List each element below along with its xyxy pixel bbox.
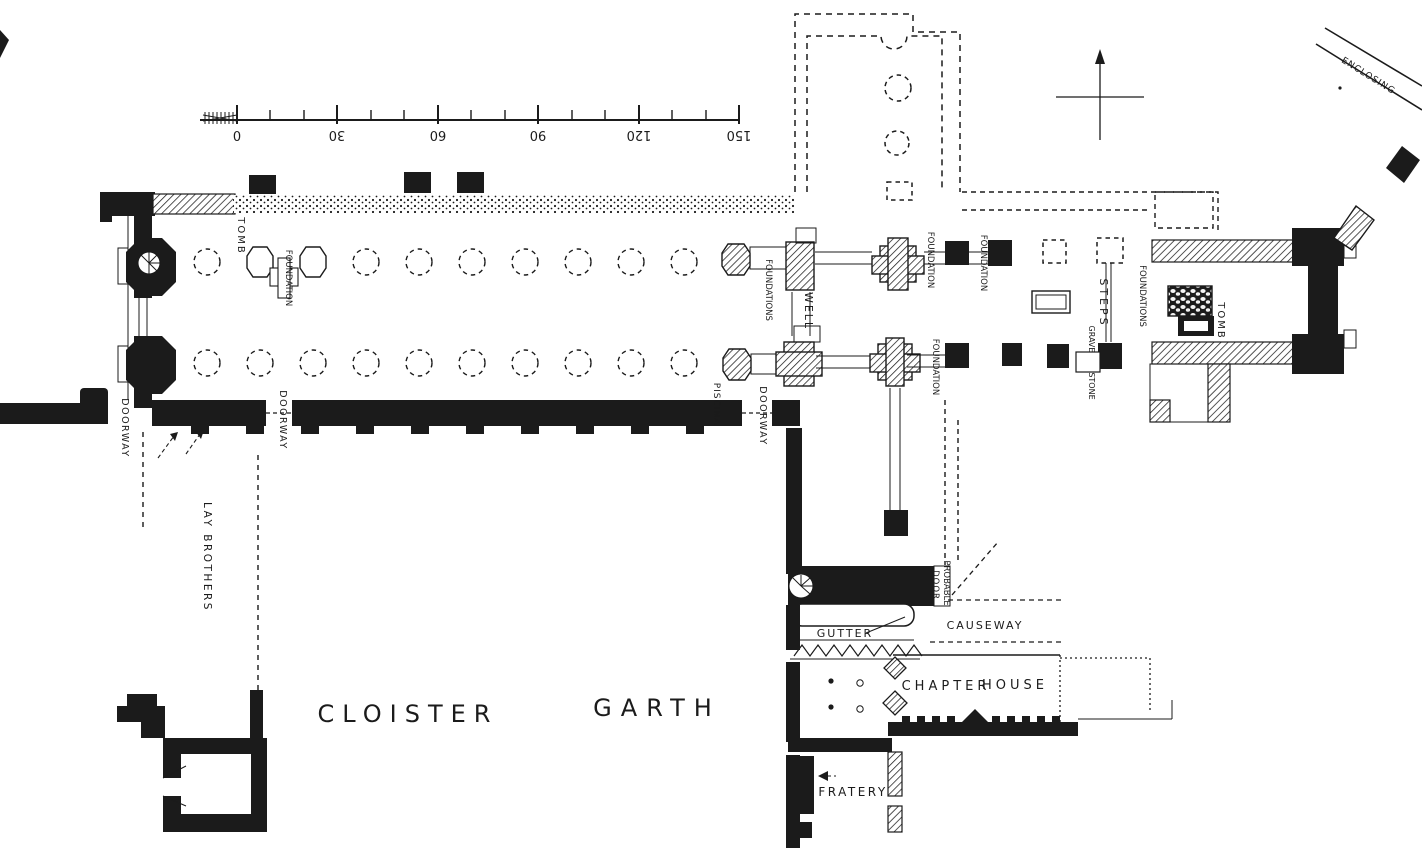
scale-bar-major-ticks xyxy=(237,105,739,124)
arrow-icon xyxy=(818,771,836,781)
doorway-crossing-label: DOORWAY xyxy=(757,386,768,445)
well-label: WELL xyxy=(802,292,815,330)
house-label: HOUSE xyxy=(982,678,1048,693)
foundation-se-label: FOUNDATION xyxy=(930,339,940,395)
choir xyxy=(815,238,1123,386)
tomb-west-label: TOMB xyxy=(235,216,246,254)
east-tomb-cobbles xyxy=(1168,286,1212,316)
foundation-nave-label: FOUNDATION xyxy=(283,250,293,306)
scale-tick-0: 0 xyxy=(233,127,241,142)
south-west-crossing-pier xyxy=(776,342,822,386)
edge-mark xyxy=(0,30,9,58)
probable-label: PROBABLE xyxy=(941,560,951,605)
spiral-stair-icon xyxy=(138,252,160,274)
north-arrow-icon xyxy=(1056,49,1144,140)
north-transept xyxy=(795,14,960,200)
spiral-stair-icon xyxy=(789,574,813,598)
scale-tick-60: 60 xyxy=(430,127,447,142)
foundation-choir-label: FOUNDATION xyxy=(978,235,988,291)
foundation-ne-label: FOUNDATION xyxy=(925,232,935,288)
enclosing-wall-fragment xyxy=(1386,146,1420,183)
scale-tick-150: 150 xyxy=(727,127,752,142)
lay-brothers-label: LAY BROTHERS xyxy=(201,502,213,612)
piscina-label: PISCINA xyxy=(711,383,721,426)
doorway-west-label: DOORWAY xyxy=(119,398,130,457)
west-front xyxy=(118,196,176,408)
southwest-building xyxy=(117,690,267,832)
gutter-channel xyxy=(792,604,914,626)
nave-columns-south xyxy=(194,350,697,376)
scale-tick-30: 30 xyxy=(329,127,346,142)
fratery-label: FRATERY xyxy=(818,785,887,799)
causeway-label: CAUSEWAY xyxy=(947,619,1024,632)
west-range xyxy=(117,432,267,832)
tomb-east-label: TOMB xyxy=(1215,301,1226,339)
chapter-house xyxy=(883,655,1172,736)
gutter-label: GUTTER xyxy=(817,627,873,640)
foundations-crossing-label: FOUNDATIONS xyxy=(763,259,773,321)
door-label: DOOR xyxy=(930,570,940,600)
scale-bar: 0 30 60 90 120 150 xyxy=(200,105,751,142)
doorway-nave-label: DOORWAY xyxy=(277,390,288,449)
foundations-presbytery-label: FOUNDATIONS xyxy=(1137,265,1147,327)
scale-tick-90: 90 xyxy=(530,127,547,142)
enclosing-wall: ENCLOSING xyxy=(1316,28,1422,183)
well-pier xyxy=(786,242,814,290)
cloister-label: CLOISTER xyxy=(318,700,499,728)
steps-label: STEPS xyxy=(1097,278,1110,327)
nave-north-wall-robbed xyxy=(233,195,795,213)
presbytery xyxy=(962,192,1374,422)
scale-bar-tail xyxy=(203,112,237,124)
grave-stone xyxy=(1076,352,1100,372)
grave-label: GRAVE xyxy=(1087,326,1096,353)
abbey-plan: 0 30 60 90 120 150 ENCLOSING xyxy=(0,0,1422,848)
enclosing-label: ENCLOSING xyxy=(1339,56,1397,97)
scale-tick-120: 120 xyxy=(627,127,652,142)
slype-room xyxy=(788,678,892,752)
stone-label: STONE xyxy=(1087,372,1096,399)
chapter-label: CHAPTER xyxy=(902,679,991,694)
steps-arrow-icon xyxy=(158,430,204,458)
garth-label: GARTH xyxy=(593,694,721,722)
